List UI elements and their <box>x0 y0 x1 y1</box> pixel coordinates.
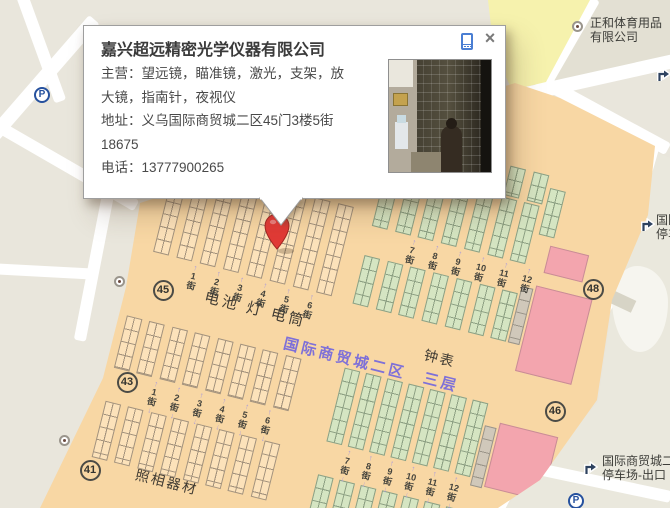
street-suffix: 街 <box>473 271 484 283</box>
street-label-8: ↑8街 <box>425 243 445 273</box>
street-label-11: ↑11街↓ <box>420 469 442 506</box>
stall-block <box>303 474 334 508</box>
stall-block <box>398 266 426 318</box>
street-label-6: ↑6街↓ <box>255 407 277 444</box>
photo-frame <box>393 93 408 106</box>
road <box>0 263 95 279</box>
street-label-5: ↑5街↓ <box>233 401 255 438</box>
street-suffix: 街 <box>404 254 415 266</box>
popup-body-line: 电话：13777900265 <box>101 156 353 180</box>
stall-block <box>251 440 281 500</box>
street-suffix: 街 <box>427 259 438 271</box>
street-suffix: 街 <box>279 303 290 315</box>
photo-person <box>441 126 462 173</box>
stall-block <box>273 355 302 411</box>
parking-exit-line: 停车场-出口 <box>602 468 670 482</box>
clipped-edge-label: 国际 停车 <box>656 213 670 241</box>
photo-dark-column <box>481 60 491 173</box>
street-label-1: ↑1街 <box>183 263 203 293</box>
photo-bottle <box>397 115 406 123</box>
stall-block <box>510 202 540 264</box>
parking-icon[interactable]: P <box>34 87 50 103</box>
gate-41: 41 <box>80 460 101 481</box>
company-label-line: 正和体育用品 <box>590 16 662 30</box>
stall-block <box>503 166 526 199</box>
street-label-11: ↑11街 <box>494 260 514 290</box>
clipped-edge-line: 停车 <box>656 227 670 241</box>
poi-dot[interactable] <box>572 21 583 32</box>
exit-arrow-icon <box>640 218 655 232</box>
street-suffix: 街 <box>232 291 243 303</box>
escalator-block <box>544 246 590 283</box>
street-label-10: ↑10街↓ <box>399 464 421 501</box>
close-icon[interactable]: × <box>480 28 500 48</box>
phone-screen <box>463 35 471 44</box>
street-suffix: 街 <box>450 265 461 277</box>
poi-dot[interactable] <box>114 276 125 287</box>
popup-title: 嘉兴超远精密光学仪器有限公司 <box>101 36 325 60</box>
exit-arrow-icon <box>656 68 670 82</box>
street-label-10: ↑10街 <box>471 254 491 284</box>
exit-arrow-icon <box>583 461 598 475</box>
stall-block <box>421 272 449 324</box>
photo-person-head <box>446 118 457 129</box>
store-photo-thumbnail[interactable] <box>388 59 492 173</box>
street-label-7: ↑7街 <box>402 237 422 267</box>
street-suffix: 街 <box>302 309 313 321</box>
company-label-sports: 正和体育用品 有限公司 <box>590 16 662 44</box>
street-label-2: ↑2街↓ <box>164 385 186 422</box>
send-to-phone-icon[interactable] <box>461 33 473 50</box>
street-suffix: 街 <box>209 285 220 297</box>
parking-icon[interactable]: P <box>568 493 584 508</box>
parking-exit-line: 国际商贸城二区 <box>602 454 670 468</box>
street-label-4: ↑4街↓ <box>210 396 232 433</box>
street-label-1: ↑1街↓ <box>142 379 164 416</box>
stall-block <box>467 284 495 336</box>
street-label-9: ↑9街 <box>448 249 468 279</box>
stall-block <box>527 171 550 204</box>
street-label-6: ↑6街 <box>299 292 319 322</box>
parking-exit-label: 国际商贸城二区 停车场-出口 <box>602 454 670 482</box>
stall-block <box>352 255 380 307</box>
street-label-3: ↑3街↓ <box>187 390 209 427</box>
phone-keypad <box>463 45 471 48</box>
poi-dot[interactable] <box>59 435 70 446</box>
popup-body-line: 主营：望远镜，瞄准镜，激光，支架，放大镜，指南针，夜视仪 <box>101 62 353 109</box>
company-label-line: 有限公司 <box>590 30 662 44</box>
photo-dispenser <box>395 122 408 149</box>
map-canvas[interactable]: 电池 灯 电筒 国际商贸城二区 三层 钟表 照相器材 ↑1街↑2街↑3街↑4街↑… <box>0 0 670 508</box>
gate-43: 43 <box>117 372 138 393</box>
popup-tail <box>254 197 310 231</box>
stall-block <box>444 278 472 330</box>
street-suffix: 街 <box>519 282 530 294</box>
popup-body: 主营：望远镜，瞄准镜，激光，支架，放大镜，指南针，夜视仪地址：义乌国际商贸城二区… <box>101 62 353 180</box>
gate-48: 48 <box>583 279 604 300</box>
street-label-9: ↑9街↓ <box>378 458 400 495</box>
street-suffix: 街 <box>255 297 266 309</box>
clipped-edge-line: 国际 <box>656 213 670 227</box>
street-suffix: 街 <box>185 280 196 292</box>
stall-block <box>375 261 403 313</box>
street-label-12: ↑12街↓ <box>442 474 464 508</box>
gate-46: 46 <box>545 401 566 422</box>
gate-45: 45 <box>153 280 174 301</box>
photo-ceiling <box>389 60 413 87</box>
popup-body-line: 地址：义乌国际商贸城二区45门3楼5街18675 <box>101 109 353 156</box>
info-popup: 嘉兴超远精密光学仪器有限公司 × 主营：望远镜，瞄准镜，激光，支架，放大镜，指南… <box>83 25 506 199</box>
street-suffix: 街 <box>496 277 507 289</box>
street-label-8: ↑8街↓ <box>356 453 378 490</box>
street-label-7: ↑7街↓ <box>335 448 357 485</box>
